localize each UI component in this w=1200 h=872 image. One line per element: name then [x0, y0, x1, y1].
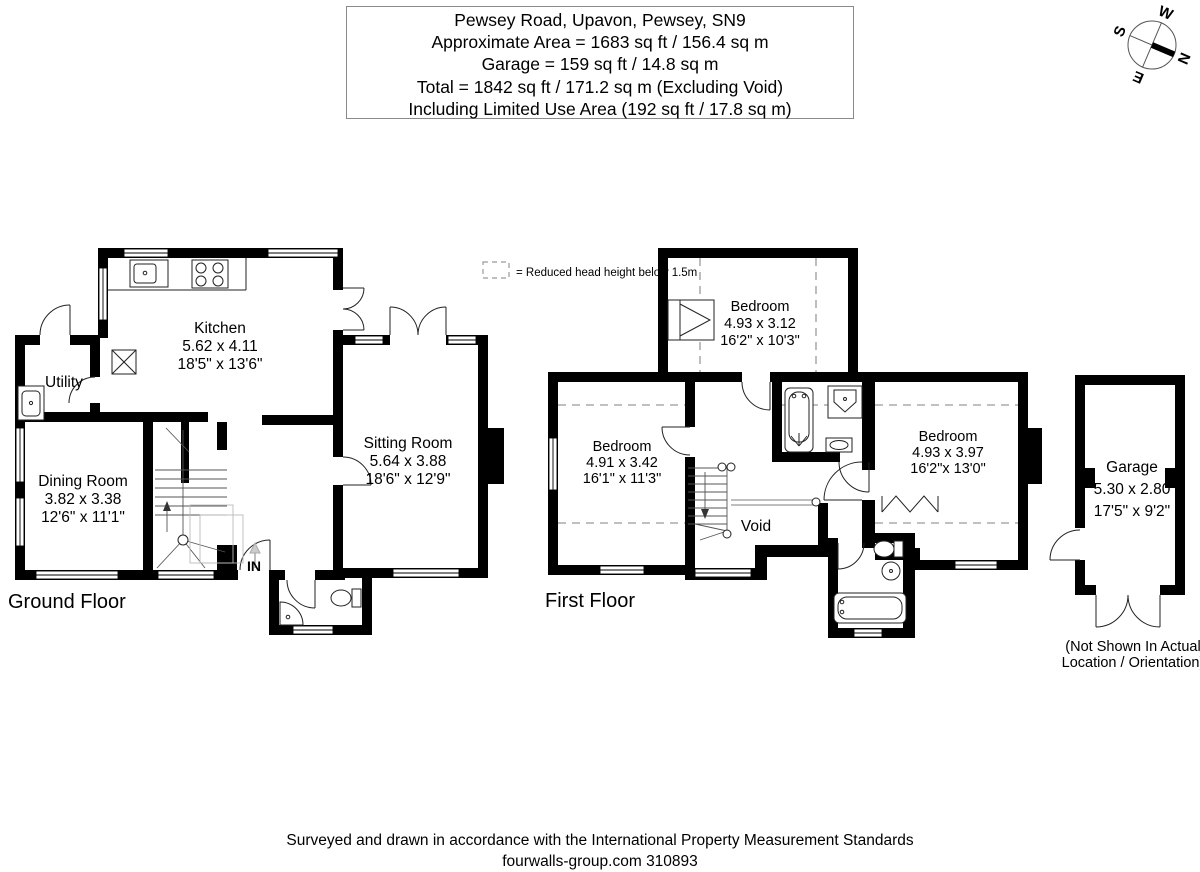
bedroom-left-imperial: 16'1" x 11'3" — [583, 471, 661, 487]
compass-west-label: W — [1156, 3, 1176, 25]
sitting-imperial: 18'6" x 12'9" — [365, 471, 450, 488]
bedroom-top-label: Bedroom — [731, 299, 790, 315]
bedroom-right-metric: 4.93 x 3.97 — [912, 445, 984, 461]
legend-dashed-box — [483, 262, 509, 278]
garage-doors — [1050, 530, 1160, 627]
top-bedroom-wardrobe-icon — [668, 300, 714, 340]
compass-south-label: S — [1110, 24, 1130, 40]
compass-icon: N E S W — [1110, 3, 1193, 87]
utility-sink-icon — [18, 386, 44, 420]
wc-corner-basin-icon — [280, 602, 303, 625]
footer-branding-line: fourwalls-group.com 310893 — [0, 851, 1200, 872]
bedroom-left-label: Bedroom — [593, 439, 652, 455]
compass-north-label: N — [1174, 50, 1194, 67]
garage-note-line2: Location / Orientation) — [1062, 655, 1200, 671]
floorplan-page: Pewsey Road, Upavon, Pewsey, SN9 Approxi… — [0, 0, 1200, 872]
entrance-in-label: IN — [247, 558, 261, 574]
kitchen-metric: 5.62 x 4.11 — [182, 338, 258, 355]
bedroom-right-imperial: 16'2"x 13'0" — [910, 461, 986, 477]
dining-imperial: 12'6" x 11'1" — [41, 509, 125, 526]
kitchen-label: Kitchen — [194, 320, 246, 337]
garage-imperial: 17'5" x 9'2" — [1094, 503, 1170, 520]
right-bedroom-wardrobe-icon — [882, 496, 938, 512]
ensuite-basin-icon — [882, 562, 900, 580]
dining-metric: 3.82 x 3.38 — [45, 491, 122, 508]
compass-needle — [1152, 45, 1174, 54]
ensuite-toilet-icon — [874, 541, 903, 557]
footer: Surveyed and drawn in accordance with th… — [0, 830, 1200, 872]
bedroom-top-imperial: 16'2" x 10'3" — [720, 333, 800, 349]
footer-standards-line: Surveyed and drawn in accordance with th… — [0, 830, 1200, 851]
utility-label: Utility — [45, 374, 83, 391]
dining-label: Dining Room — [38, 473, 128, 490]
sitting-metric: 5.64 x 3.88 — [370, 453, 447, 470]
floorplan-drawing: N E S W = Reduced head height below 1.5m — [0, 0, 1200, 872]
first-floor-label: First Floor — [545, 590, 635, 612]
ground-floor-label: Ground Floor — [8, 591, 126, 613]
garage-plan: Garage 5.30 x 2.80 17'5" x 9'2" (Not Sho… — [1050, 375, 1200, 671]
sitting-label: Sitting Room — [364, 435, 453, 452]
garage-note-line1: (Not Shown In Actual — [1065, 639, 1200, 655]
legend-label: = Reduced head height below 1.5m — [516, 267, 697, 279]
kitchen-imperial: 18'5" x 13'6" — [177, 356, 262, 373]
kitchen-sink-icon — [130, 260, 168, 287]
wc-toilet-icon — [331, 589, 361, 607]
stove-icon — [192, 260, 228, 288]
ensuite-bath-icon — [834, 593, 906, 623]
flue-icon — [112, 350, 136, 374]
bathroom-bath-icon — [785, 388, 813, 452]
first-floor-plan: Bedroom 4.93 x 3.12 16'2" x 10'3" Bedroo… — [545, 248, 1042, 638]
garage-metric: 5.30 x 2.80 — [1094, 481, 1171, 498]
compass-east-label: E — [1131, 67, 1147, 87]
bedroom-top-metric: 4.93 x 3.12 — [724, 316, 796, 332]
bedroom-right-label: Bedroom — [919, 429, 978, 445]
bedroom-left-metric: 4.91 x 3.42 — [586, 455, 658, 471]
ground-floor-plan: Kitchen 5.62 x 4.11 18'5" x 13'6" Utilit… — [8, 248, 504, 635]
void-label: Void — [741, 518, 771, 535]
bathroom-basin-icon — [826, 438, 852, 452]
shower-icon — [828, 386, 862, 418]
garage-label: Garage — [1106, 459, 1158, 476]
